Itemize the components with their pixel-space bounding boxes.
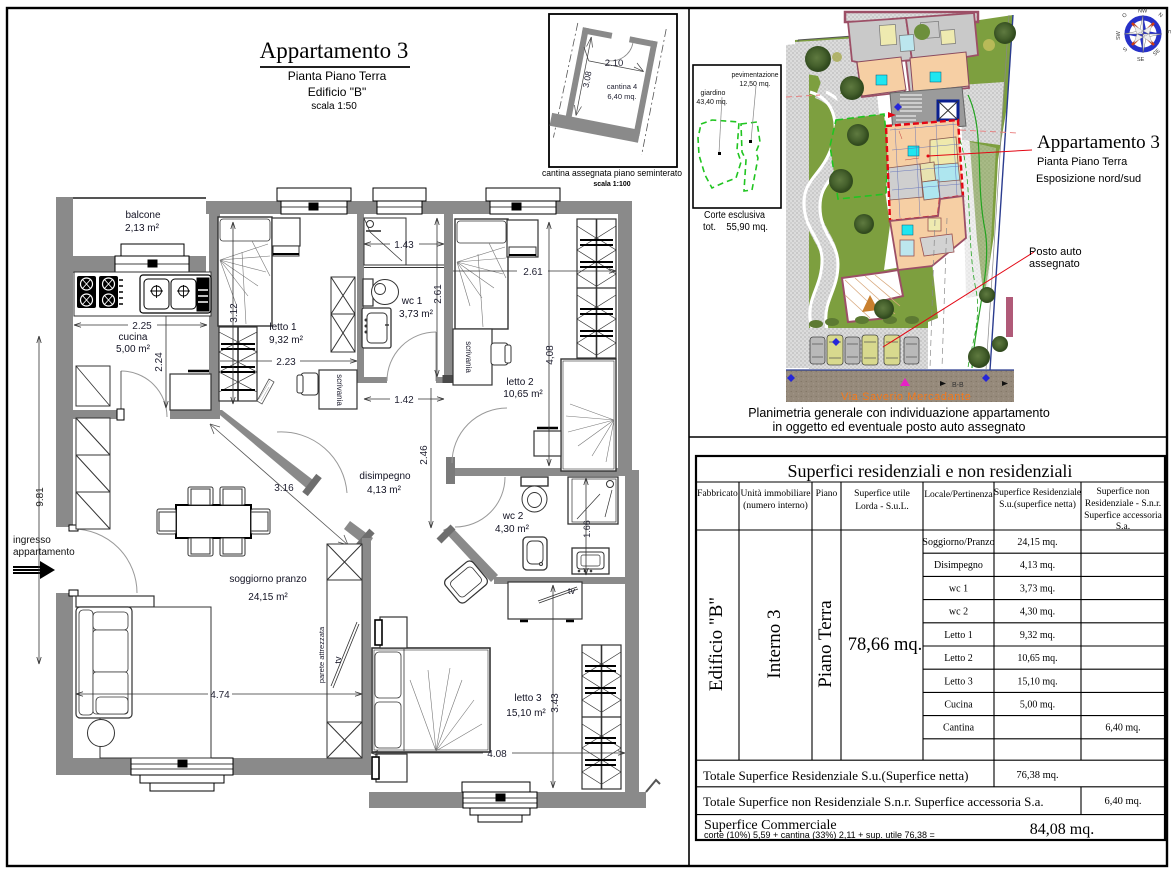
svg-text:Piano Terra: Piano Terra	[815, 600, 836, 688]
svg-text:N: N	[1157, 12, 1164, 19]
svg-text:4.08: 4.08	[487, 749, 507, 760]
svg-text:wc 2: wc 2	[502, 511, 524, 522]
svg-text:NW: NW	[1138, 9, 1148, 15]
svg-text:2.23: 2.23	[276, 357, 296, 368]
svg-text:3.12: 3.12	[229, 303, 240, 323]
svg-text:O: O	[1121, 12, 1129, 20]
svg-text:15,10 m²: 15,10 m²	[506, 708, 546, 719]
svg-text:Appartamento 3: Appartamento 3	[260, 38, 409, 63]
svg-text:Appartamento 3: Appartamento 3	[1037, 132, 1160, 153]
svg-text:12,50 mq.: 12,50 mq.	[739, 81, 770, 88]
svg-text:Disimpegno: Disimpegno	[934, 560, 983, 571]
svg-text:Via Saverio Mercadante: Via Saverio Mercadante	[841, 391, 971, 403]
svg-text:2.61: 2.61	[523, 267, 543, 278]
svg-text:6,40 mq.: 6,40 mq.	[1105, 723, 1140, 734]
svg-text:wc 1: wc 1	[949, 584, 968, 595]
svg-text:cantina assegnata piano semint: cantina assegnata piano seminterato	[542, 168, 682, 179]
svg-text:2.24: 2.24	[154, 352, 165, 372]
svg-text:10,65 mq.: 10,65 mq.	[1017, 653, 1057, 664]
svg-text:Lorda - S.u.L.: Lorda - S.u.L.	[855, 502, 909, 512]
svg-text:Pianta Piano Terra: Pianta Piano Terra	[1037, 156, 1128, 168]
svg-text:24,15 m²: 24,15 m²	[248, 592, 288, 603]
svg-text:3.43: 3.43	[550, 693, 561, 713]
svg-text:84,08 mq.: 84,08 mq.	[1030, 821, 1094, 838]
svg-text:letto 1: letto 1	[269, 322, 297, 333]
svg-text:Superfice utile: Superfice utile	[854, 488, 910, 499]
svg-text:78,66 mq.: 78,66 mq.	[848, 635, 923, 655]
svg-text:4,30 mq.: 4,30 mq.	[1020, 607, 1055, 618]
svg-text:9.81: 9.81	[35, 487, 46, 507]
svg-text:wc 2: wc 2	[949, 607, 968, 618]
svg-text:Edificio "B": Edificio "B"	[706, 597, 727, 691]
svg-text:disimpegno: disimpegno	[359, 471, 411, 482]
svg-text:tot. 55,90 mq.: tot. 55,90 mq.	[703, 222, 768, 233]
svg-text:2.46: 2.46	[419, 445, 430, 465]
svg-text:tv: tv	[568, 586, 576, 596]
svg-text:1.66: 1.66	[582, 520, 592, 538]
svg-text:Residenziale - S.n.r.: Residenziale - S.n.r.	[1085, 499, 1161, 509]
svg-text:Superfici residenziali e non r: Superfici residenziali e non residenzial…	[788, 461, 1073, 481]
svg-text:Soggiorno/Pranzo: Soggiorno/Pranzo	[922, 537, 994, 548]
svg-text:Edificio "B": Edificio "B"	[308, 85, 367, 99]
svg-text:cantina 4: cantina 4	[607, 82, 637, 91]
svg-text:balcone: balcone	[125, 210, 160, 221]
svg-text:43,40 mq.: 43,40 mq.	[696, 99, 727, 106]
svg-text:Fabbricato: Fabbricato	[697, 489, 738, 499]
svg-text:letto 2: letto 2	[506, 377, 534, 388]
svg-text:Pianta Piano Terra: Pianta Piano Terra	[288, 69, 387, 83]
svg-text:2.61: 2.61	[433, 284, 444, 304]
svg-text:1.43: 1.43	[394, 240, 414, 251]
svg-text:SE: SE	[1152, 48, 1162, 58]
svg-text:6,40 mq.: 6,40 mq.	[607, 92, 636, 101]
svg-text:corte (10%) 5,59 + cantina (33: corte (10%) 5,59 + cantina (33%) 2,11 + …	[704, 830, 935, 840]
svg-text:Esposizione nord/sud: Esposizione nord/sud	[1036, 173, 1141, 185]
svg-text:15,10 mq.: 15,10 mq.	[1017, 676, 1057, 687]
svg-text:soggiorno pranzo: soggiorno pranzo	[229, 574, 307, 585]
svg-text:SW: SW	[1116, 30, 1122, 40]
svg-text:2.10: 2.10	[605, 58, 624, 69]
svg-text:tv: tv	[333, 656, 343, 664]
svg-text:Corte esclusiva: Corte esclusiva	[704, 210, 765, 221]
svg-text:Locale/Pertinenza: Locale/Pertinenza	[924, 490, 993, 500]
svg-text:Cantina: Cantina	[943, 723, 975, 734]
svg-text:pevimentazione: pevimentazione	[732, 72, 779, 79]
svg-text:Letto 3: Letto 3	[944, 676, 973, 687]
svg-text:S: S	[1122, 46, 1129, 53]
svg-text:scala 1:100: scala 1:100	[593, 181, 630, 188]
svg-text:2,13 m²: 2,13 m²	[125, 223, 160, 234]
svg-text:letto 3: letto 3	[514, 693, 542, 704]
svg-text:appartamento: appartamento	[13, 547, 75, 558]
svg-text:giardino: giardino	[701, 90, 726, 97]
svg-text:5,00 mq.: 5,00 mq.	[1020, 700, 1055, 711]
svg-text:2.25: 2.25	[132, 321, 152, 332]
svg-text:Piano: Piano	[816, 489, 838, 499]
svg-text:3,73 mq.: 3,73 mq.	[1020, 584, 1055, 595]
svg-text:Superfice non: Superfice non	[1096, 486, 1149, 497]
svg-text:Superfice accessoria: Superfice accessoria	[1084, 510, 1163, 521]
svg-text:parete attrezzata: parete attrezzata	[317, 626, 326, 683]
svg-text:scrivania: scrivania	[335, 374, 344, 406]
svg-text:4.74: 4.74	[210, 690, 230, 701]
svg-text:Unità immobiliare: Unità immobiliare	[741, 489, 811, 499]
svg-text:6,40 mq.: 6,40 mq.	[1104, 796, 1141, 807]
svg-text:24,15 mq.: 24,15 mq.	[1017, 537, 1057, 548]
svg-text:9,32 m²: 9,32 m²	[269, 335, 304, 346]
svg-text:in oggetto ed eventuale posto: in oggetto ed eventuale posto auto asseg…	[773, 420, 1026, 434]
svg-text:3,73 m²: 3,73 m²	[399, 309, 434, 320]
svg-text:scala 1:50: scala 1:50	[311, 101, 357, 112]
svg-text:Planimetria generale con indiv: Planimetria generale con individuazione …	[748, 406, 1050, 420]
svg-text:Letto 2: Letto 2	[944, 653, 973, 664]
svg-text:E: E	[1165, 30, 1171, 34]
svg-text:SE: SE	[1137, 57, 1145, 63]
svg-text:Totale Superfice Residenziale: Totale Superfice Residenziale S.u.(Super…	[703, 768, 968, 783]
svg-text:Cucina: Cucina	[944, 700, 973, 711]
svg-text:4,13 m²: 4,13 m²	[367, 485, 402, 496]
svg-text:76,38 mq.: 76,38 mq.	[1016, 770, 1058, 781]
svg-text:1.42: 1.42	[394, 395, 414, 406]
svg-text:4,13 mq.: 4,13 mq.	[1020, 560, 1055, 571]
svg-text:9,32 mq.: 9,32 mq.	[1020, 630, 1055, 641]
svg-text:B-B: B-B	[952, 382, 964, 389]
svg-text:Totale Superfice non Residenzi: Totale Superfice non Residenziale S.n.r.…	[703, 794, 1044, 809]
svg-text:wc 1: wc 1	[401, 296, 423, 307]
svg-text:S.u.(superfice netta): S.u.(superfice netta)	[999, 499, 1076, 510]
svg-text:Posto auto: Posto auto	[1029, 246, 1082, 258]
svg-text:Interno 3: Interno 3	[764, 609, 785, 678]
svg-text:3.16: 3.16	[274, 483, 294, 494]
svg-text:cucina: cucina	[119, 332, 148, 343]
svg-text:Letto 1: Letto 1	[944, 630, 973, 641]
svg-text:assegnato: assegnato	[1029, 258, 1080, 270]
svg-text:S.a.: S.a.	[1116, 522, 1130, 532]
svg-text:4,30 m²: 4,30 m²	[495, 524, 530, 535]
svg-text:10,65 m²: 10,65 m²	[503, 389, 543, 400]
svg-text:scrivania: scrivania	[464, 341, 473, 373]
svg-text:5,00 m²: 5,00 m²	[116, 344, 151, 355]
svg-text:(numero interno): (numero interno)	[743, 500, 808, 511]
svg-text:4,08: 4,08	[545, 345, 556, 365]
svg-text:Superfice Residenziale: Superfice Residenziale	[994, 487, 1081, 498]
svg-text:ingresso: ingresso	[13, 535, 51, 546]
